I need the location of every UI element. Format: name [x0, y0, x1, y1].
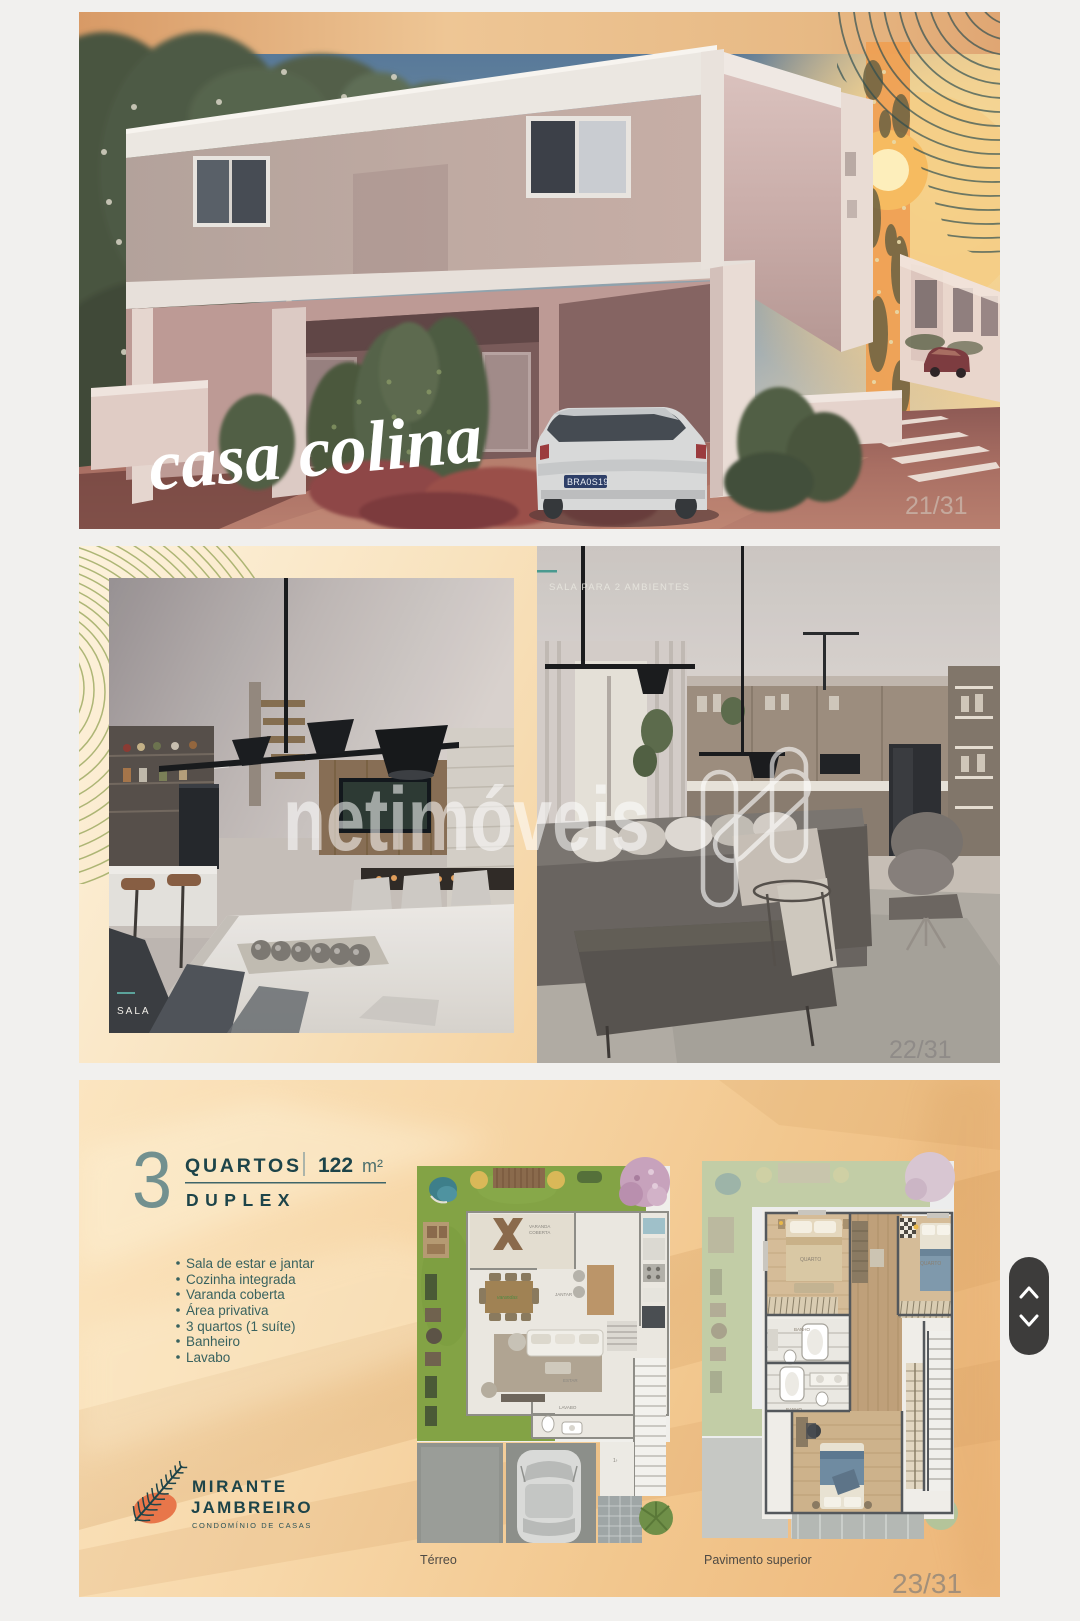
svg-text:varandas: varandas [497, 1295, 518, 1301]
svg-text:BRA0S19: BRA0S19 [567, 477, 609, 487]
svg-text:QUARTO: QUARTO [800, 1257, 821, 1263]
svg-text:SALA PARA 2 AMBIENTES: SALA PARA 2 AMBIENTES [549, 582, 690, 593]
svg-text:MIRANTE: MIRANTE [192, 1477, 288, 1496]
svg-text:Área privativa: Área privativa [186, 1303, 269, 1318]
svg-text:JAMBREIRO: JAMBREIRO [191, 1498, 313, 1517]
svg-text:QUARTOS: QUARTOS [185, 1155, 302, 1177]
svg-text:QUARTO: QUARTO [920, 1261, 941, 1267]
svg-text:DUPLEX: DUPLEX [186, 1190, 296, 1210]
svg-text:Térreo: Térreo [420, 1553, 457, 1567]
svg-text:SALA: SALA [117, 1006, 151, 1017]
svg-text:23/31: 23/31 [892, 1568, 962, 1597]
svg-text:1›: 1› [613, 1458, 618, 1464]
svg-text:21/31: 21/31 [905, 492, 968, 520]
svg-text:BANHO: BANHO [794, 1327, 811, 1332]
svg-text:Banheiro: Banheiro [186, 1334, 240, 1349]
svg-text:122: 122 [318, 1154, 353, 1177]
svg-text:3: 3 [132, 1136, 172, 1225]
svg-text:COBERTA: COBERTA [529, 1230, 550, 1235]
svg-text:Pavimento superior: Pavimento superior [704, 1553, 812, 1567]
svg-text:CONDOMÍNIO DE CASAS: CONDOMÍNIO DE CASAS [192, 1521, 312, 1530]
svg-text:Varanda coberta: Varanda coberta [186, 1287, 285, 1302]
svg-text:3 quartos (1 suíte): 3 quartos (1 suíte) [186, 1319, 296, 1334]
svg-text:LAVABO: LAVABO [559, 1405, 577, 1410]
svg-text:Lavabo: Lavabo [186, 1350, 230, 1365]
svg-text:ESTAR: ESTAR [563, 1378, 578, 1383]
svg-text:netimóveis: netimóveis [283, 770, 650, 870]
svg-text:VARANDA: VARANDA [529, 1224, 550, 1229]
svg-text:Sala de estar e jantar: Sala de estar e jantar [186, 1256, 315, 1271]
svg-text:Cozinha integrada: Cozinha integrada [186, 1272, 296, 1287]
svg-text:22/31: 22/31 [889, 1036, 952, 1063]
svg-text:m²: m² [362, 1156, 383, 1176]
svg-text:JANTAR: JANTAR [555, 1292, 573, 1297]
